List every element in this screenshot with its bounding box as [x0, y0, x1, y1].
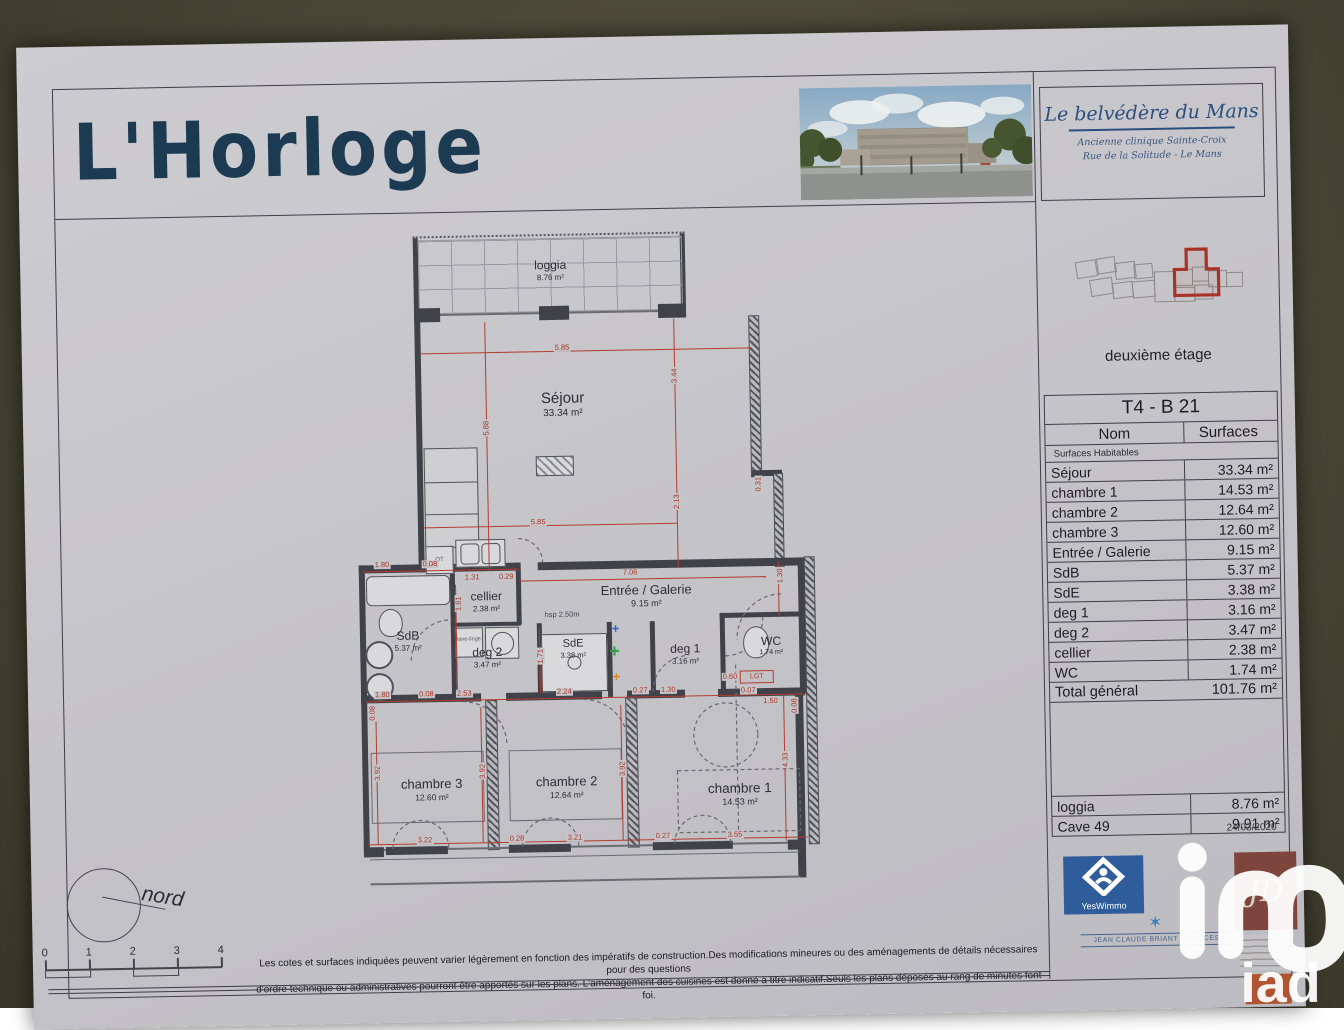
dim-label: 0.28: [509, 835, 526, 843]
plumbing-marker-green: +: [609, 641, 620, 662]
dim-label: 1.71: [537, 648, 545, 665]
plumbing-marker-orange: +: [613, 669, 621, 684]
yeswimmo-logo: YesWimmo: [1063, 855, 1144, 914]
ceiling-height-note: hsp 2.50m: [545, 610, 580, 620]
floor-outlet: [536, 456, 574, 477]
room-label-ch3: chambre 3 12.60 m²: [382, 775, 482, 803]
kitchen-unit: [424, 447, 479, 484]
dim-label: 0.60: [722, 673, 739, 681]
iad-watermark-text: iad: [1240, 952, 1320, 1010]
dim-label: 1.30: [660, 686, 677, 694]
bathtub: [366, 575, 451, 607]
project-subtitle-2: Rue de la Solitude - Le Mans: [1041, 148, 1263, 163]
kitchen-sink: [455, 539, 506, 568]
dim-label: 3.21: [567, 833, 584, 841]
dim-label: 0.08: [790, 697, 798, 714]
room-label-deg2: deg 2 3.47 m²: [457, 645, 517, 670]
dim-label: 2.53: [456, 689, 473, 697]
yeswimmo-label: YesWimmo: [1064, 900, 1144, 911]
dim-label: 1.30: [776, 567, 784, 584]
plan-sheet: L'Horloge Le belvédère du Mans Ancienn: [16, 24, 1306, 1029]
room-label-wc: WC 1.74 m²: [747, 634, 795, 657]
dim-label: 5.88: [482, 420, 490, 437]
room-label-sde: SdE 3.38 m²: [545, 637, 601, 660]
dim-label: 0.29: [498, 573, 515, 581]
unit-id: T4 - B 21: [1045, 392, 1277, 425]
dim-label: 5.85: [554, 344, 571, 352]
column-header-surfaces: Surfaces: [1183, 421, 1277, 443]
program-title: L'Horloge: [72, 101, 487, 199]
scale-tick-label: 4: [218, 944, 224, 956]
scale-tick-label: 2: [130, 946, 136, 958]
yeswimmo-icon: [1063, 855, 1144, 896]
project-underline: [1069, 126, 1235, 131]
dim-label: 2.24: [556, 688, 573, 696]
room-label-ch2: chambre 2 12.64 m²: [512, 773, 622, 801]
key-plan: [1070, 230, 1262, 333]
room-label-deg1: deg 1 3.16 m²: [655, 641, 715, 666]
unit-highlight: [1174, 249, 1219, 296]
dim-label: 1.31: [464, 573, 481, 581]
photo-background: L'Horloge Le belvédère du Mans Ancienn: [0, 0, 1344, 1008]
project-subtitle-1: Ancienne clinique Sainte-Croix: [1041, 134, 1263, 149]
iad-watermark: iad: [1152, 833, 1344, 1010]
room-label-entree: Entrée / Galerie 9.15 m²: [571, 581, 721, 610]
lgt-label: LGT: [740, 670, 774, 684]
dim-label: 1.80: [374, 561, 391, 569]
dim-label: 3.44: [670, 367, 678, 384]
scale-tick-label: 1: [86, 947, 92, 959]
building-photo: [799, 84, 1033, 200]
project-name: Le belvédère du Mans: [1040, 100, 1262, 126]
room-label-cellier: cellier 2.38 m²: [451, 589, 521, 614]
room-label-loggia: loggia 8.76 m²: [500, 257, 600, 283]
dim-label: 0.08: [422, 560, 439, 568]
column-header-name: Nom: [1045, 424, 1183, 444]
project-box: Le belvédère du Mans Ancienne clinique S…: [1039, 83, 1265, 201]
room-label-ch1: chambre 1 14.53 m²: [680, 780, 800, 808]
plumbing-marker-blue: +: [612, 621, 620, 636]
scale-tick-label: 0: [42, 947, 48, 959]
table-empty-cell: [1050, 699, 1284, 797]
dim-label: 7.06: [622, 568, 639, 576]
dim-label: 0.27: [655, 832, 672, 840]
dim-label: 1.50: [762, 697, 779, 705]
room-label-sdb: SdB 5.37 m²: [379, 628, 437, 653]
dim-label: 0.08: [418, 690, 435, 698]
kitchen-unit: [424, 481, 479, 516]
dim-label: 0.08: [369, 705, 377, 722]
scale-bar: 0 1 2 3 4: [45, 944, 246, 984]
room-label-sejour: Séjour 33.34 m²: [502, 389, 623, 420]
dim-label: 5.85: [530, 518, 547, 526]
dim-label: 1.80: [374, 691, 391, 699]
dim-label: 0.31: [754, 476, 762, 493]
dim-label: 3.22: [417, 836, 434, 844]
scale-tick-label: 3: [174, 945, 180, 957]
dim-label: 0.07: [740, 686, 757, 694]
dim-label: 3.55: [727, 831, 744, 839]
surfaces-table: T4 - B 21 Nom Surfaces Surfaces Habitabl…: [1044, 391, 1286, 837]
dim-label: 2.13: [673, 493, 681, 510]
dim-label: 0.27: [632, 686, 649, 694]
dim-label: 4.33: [781, 751, 789, 768]
